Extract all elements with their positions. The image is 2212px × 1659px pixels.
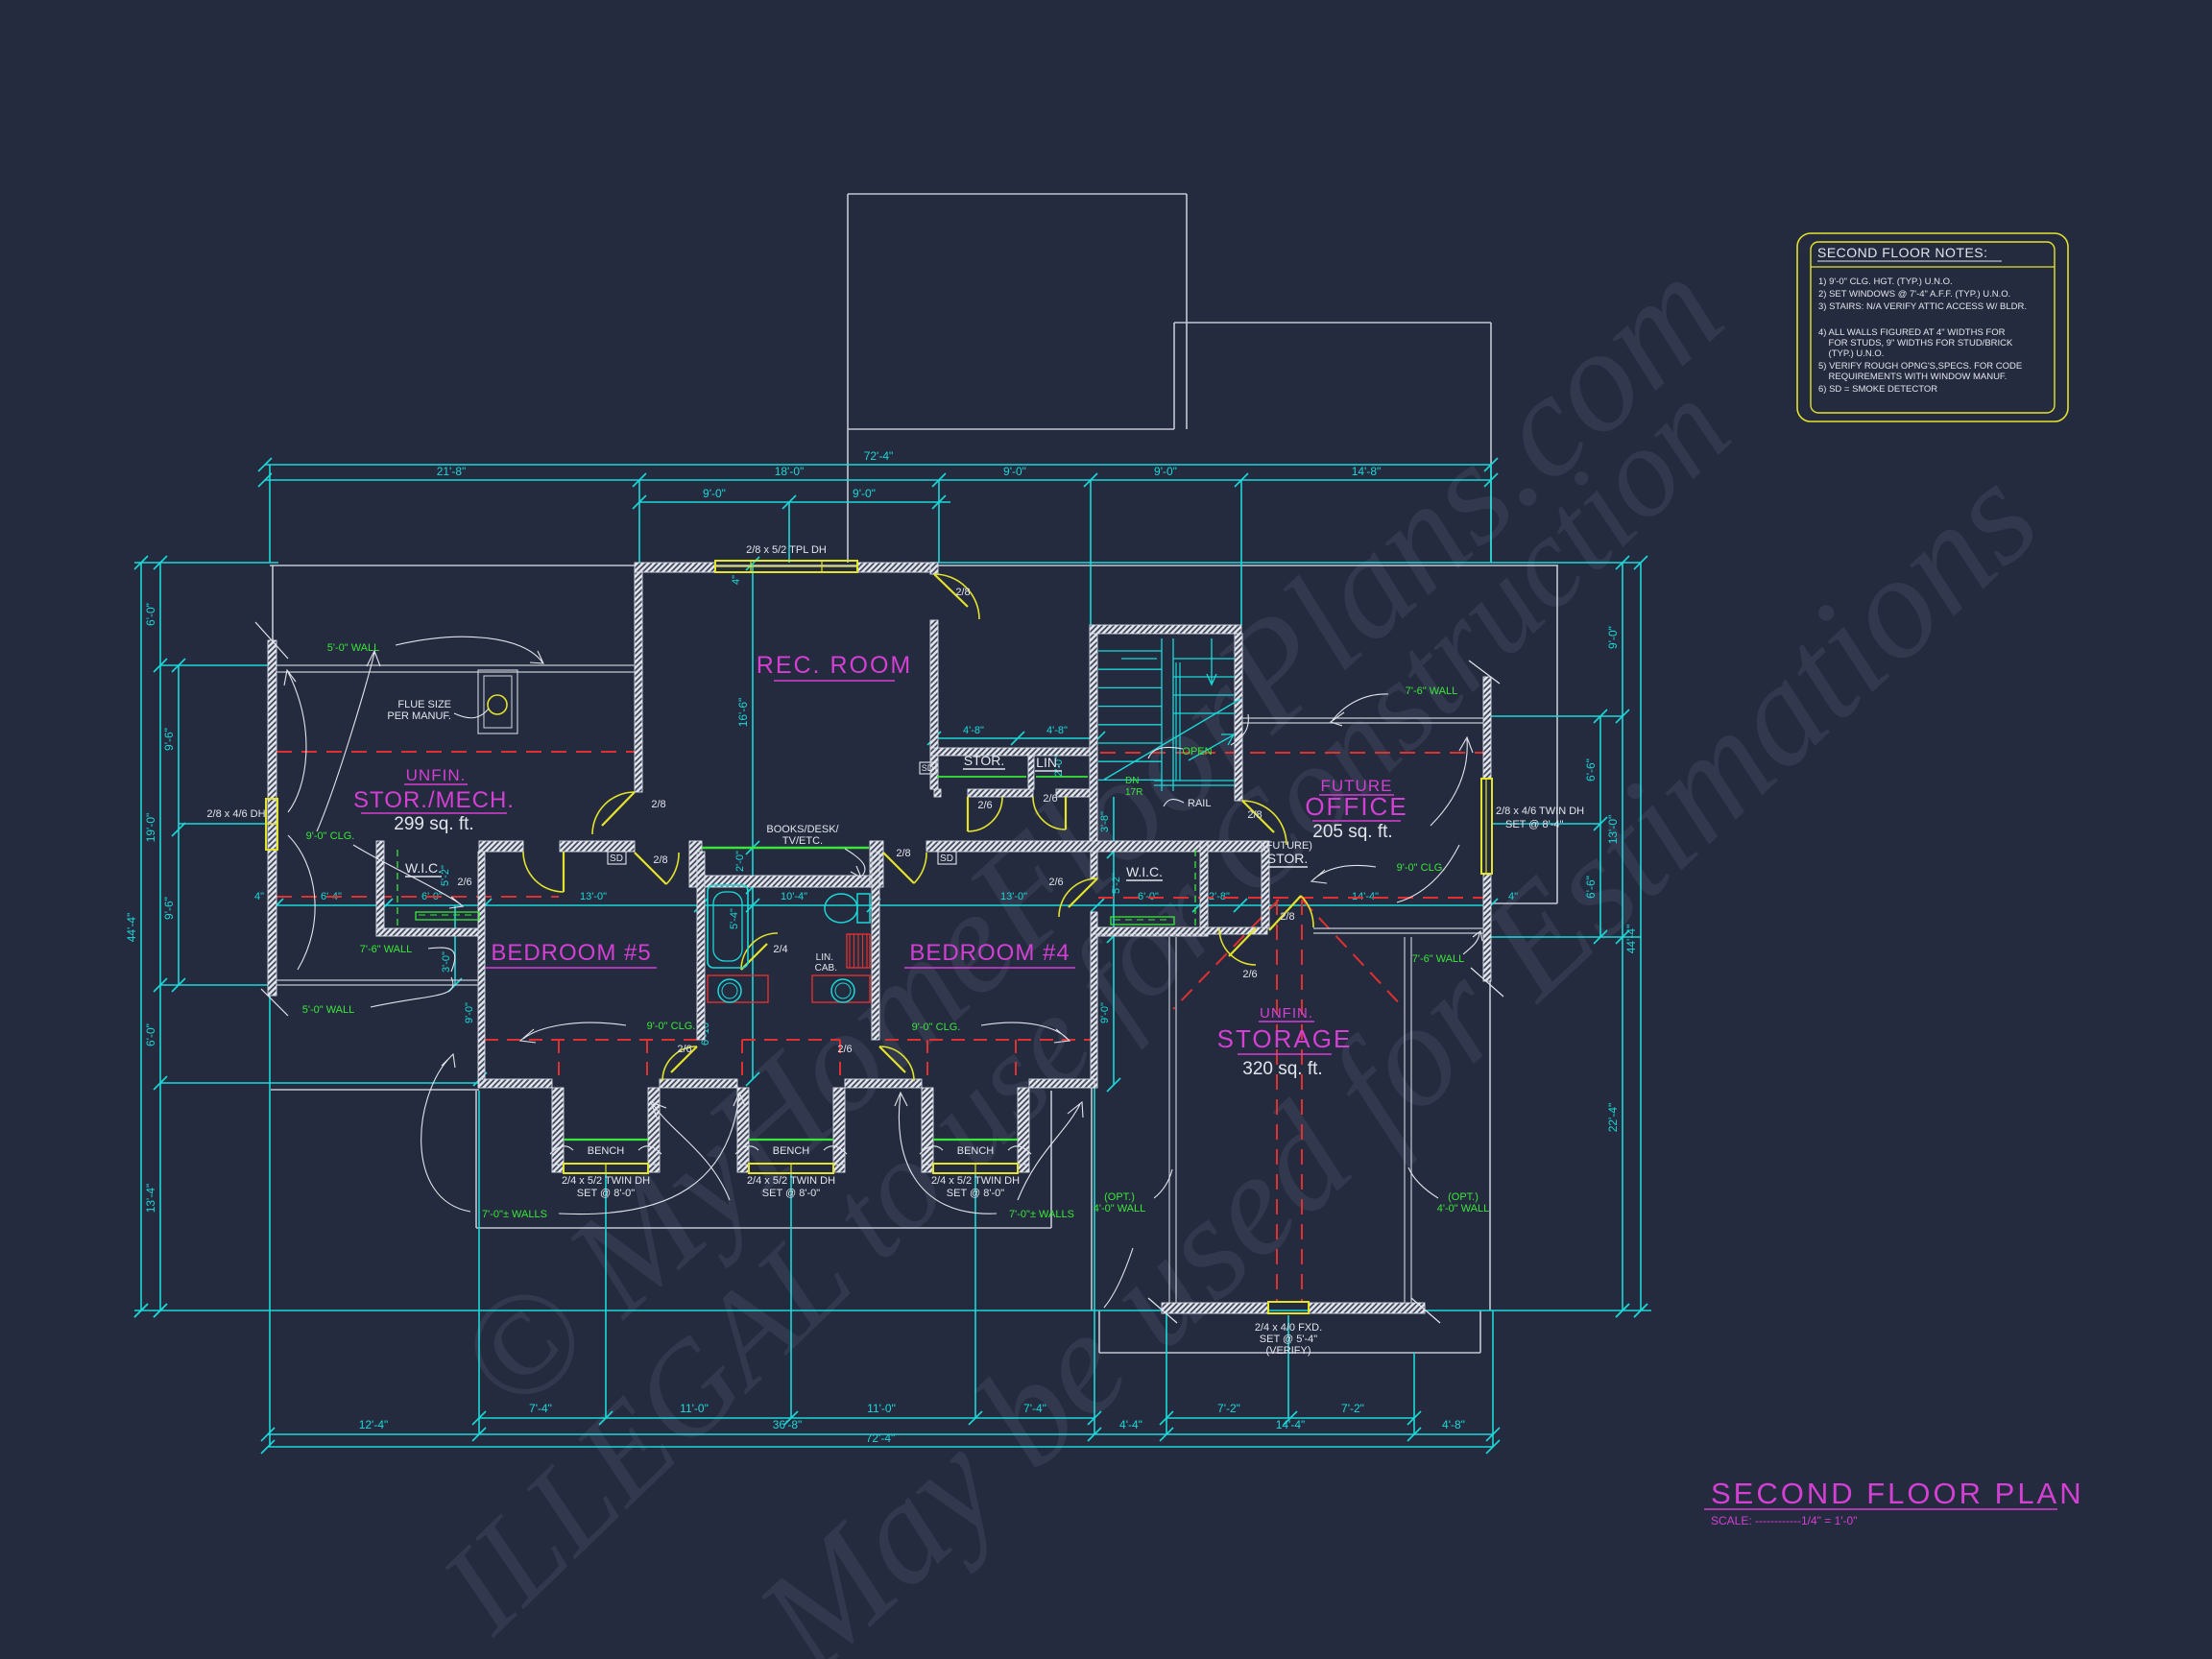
svg-text:UNFIN.: UNFIN. (406, 766, 467, 784)
svg-text:9'-0": 9'-0" (1606, 626, 1620, 649)
svg-text:9'-0": 9'-0" (1154, 465, 1177, 478)
svg-text:(OPT.): (OPT.) (1448, 1191, 1479, 1203)
svg-text:6'-6": 6'-6" (1584, 876, 1598, 899)
svg-text:14'-8": 14'-8" (1352, 465, 1382, 478)
svg-text:2/8: 2/8 (896, 848, 910, 859)
svg-text:18'-0": 18'-0" (775, 465, 805, 478)
svg-text:TV/ETC.: TV/ETC. (782, 835, 823, 847)
svg-text:44'-4": 44'-4" (1624, 925, 1638, 954)
svg-text:36'-8": 36'-8" (773, 1418, 803, 1431)
svg-text:2/4 x 4/0 FXD.: 2/4 x 4/0 FXD. (1255, 1322, 1322, 1334)
svg-text:2/8: 2/8 (955, 587, 970, 598)
svg-text:13'-4": 13'-4" (144, 1184, 157, 1214)
svg-text:SD: SD (922, 763, 934, 773)
svg-text:4) ALL WALLS FIGURED AT 4" WID: 4) ALL WALLS FIGURED AT 4" WIDTHS FOR (1818, 327, 2006, 338)
svg-text:2/8 x 5/2 TPL DH: 2/8 x 5/2 TPL DH (746, 544, 827, 556)
svg-text:17R: 17R (1125, 787, 1142, 798)
svg-text:7'-0"± WALLS: 7'-0"± WALLS (1009, 1209, 1074, 1220)
svg-text:22'-4": 22'-4" (1606, 1103, 1620, 1133)
svg-text:2/4 x 5/2 TWIN DH: 2/4 x 5/2 TWIN DH (562, 1175, 650, 1187)
svg-text:4'-0" WALL: 4'-0" WALL (1437, 1203, 1490, 1214)
svg-text:2/6: 2/6 (1048, 877, 1063, 888)
svg-text:9'-0": 9'-0" (703, 487, 726, 500)
svg-text:FOR STUDS, 9" WIDTHS FOR STUD/: FOR STUDS, 9" WIDTHS FOR STUD/BRICK (1818, 338, 2013, 349)
svg-text:PER MANUF.: PER MANUF. (387, 710, 451, 722)
svg-text:6'-6": 6'-6" (1584, 758, 1598, 781)
svg-text:6'-0": 6'-0" (144, 1023, 157, 1046)
svg-text:7'-6" WALL: 7'-6" WALL (360, 944, 413, 955)
svg-text:SCALE: ------------1/4" = 1'-0: SCALE: ------------1/4" = 1'-0" (1711, 1514, 1857, 1527)
svg-text:STOR.: STOR. (964, 753, 1005, 768)
svg-text:7'-4": 7'-4" (1023, 1402, 1046, 1415)
svg-text:W.I.C.: W.I.C. (1126, 864, 1163, 879)
svg-text:72'-4": 72'-4" (866, 1431, 896, 1445)
svg-text:3'-0": 3'-0" (441, 951, 452, 973)
svg-text:2/6: 2/6 (1043, 793, 1057, 805)
svg-text:7'-2": 7'-2" (1217, 1402, 1240, 1415)
svg-text:SECOND FLOOR NOTES:: SECOND FLOOR NOTES: (1817, 245, 1988, 260)
svg-text:13'-0": 13'-0" (580, 891, 607, 902)
svg-text:2/6: 2/6 (837, 1044, 852, 1055)
svg-text:4": 4" (254, 891, 264, 902)
svg-text:1) 9'-0" CLG. HGT. (TYP.) U.N: 1) 9'-0" CLG. HGT. (TYP.) U.N.O. (1818, 276, 1953, 287)
svg-text:9'-0": 9'-0" (464, 1002, 475, 1023)
svg-text:SECOND FLOOR PLAN: SECOND FLOOR PLAN (1711, 1477, 2084, 1510)
svg-text:STOR.: STOR. (1267, 851, 1309, 866)
svg-text:(VERIFY): (VERIFY) (1265, 1345, 1310, 1357)
svg-text:2/4 x 5/2 TWIN DH: 2/4 x 5/2 TWIN DH (931, 1175, 1020, 1187)
svg-text:BENCH: BENCH (773, 1145, 810, 1157)
svg-text:7'-6" WALL: 7'-6" WALL (1406, 685, 1458, 697)
svg-text:320 sq. ft.: 320 sq. ft. (1242, 1059, 1322, 1079)
svg-text:2'-0": 2'-0" (734, 851, 746, 872)
svg-text:13'-0": 13'-0" (1606, 815, 1620, 845)
svg-text:9'-0" CLG.: 9'-0" CLG. (1397, 862, 1446, 874)
svg-text:W.I.C.: W.I.C. (405, 860, 442, 876)
svg-text:6) SD = SMOKE DETECTOR: 6) SD = SMOKE DETECTOR (1818, 384, 1937, 395)
svg-text:9'-6": 9'-6" (162, 728, 176, 751)
svg-text:9'-0": 9'-0" (1099, 1002, 1111, 1023)
svg-text:72'-4": 72'-4" (864, 449, 894, 463)
svg-text:CAB.: CAB. (815, 963, 837, 974)
svg-text:5) VERIFY ROUGH OPNG'S,SPECS.: 5) VERIFY ROUGH OPNG'S,SPECS. FOR CODE (1818, 361, 2022, 372)
svg-text:9'-0" CLG.: 9'-0" CLG. (647, 1021, 696, 1032)
svg-text:2/8 x 4/6 TWIN DH: 2/8 x 4/6 TWIN DH (1496, 805, 1584, 817)
svg-text:14'-4": 14'-4" (1276, 1418, 1306, 1431)
svg-text:9'-0" CLG.: 9'-0" CLG. (306, 830, 355, 842)
svg-text:BEDROOM #4: BEDROOM #4 (909, 940, 1070, 966)
svg-text:44'-4": 44'-4" (125, 913, 138, 943)
svg-text:SD: SD (940, 854, 953, 864)
svg-text:BENCH: BENCH (588, 1145, 625, 1157)
svg-text:2/8: 2/8 (1280, 911, 1294, 923)
svg-text:SET @ 8'-4": SET @ 8'-4" (1505, 819, 1563, 830)
svg-text:SET @ 8'-0": SET @ 8'-0" (762, 1188, 820, 1199)
svg-text:6'-0": 6'-0" (144, 603, 157, 626)
svg-text:(OPT.): (OPT.) (1104, 1191, 1135, 1203)
svg-text:(TYP.) U.N.O.: (TYP.) U.N.O. (1818, 349, 1884, 359)
svg-text:STORAGE: STORAGE (1217, 1024, 1353, 1053)
svg-text:11'-0": 11'-0" (680, 1402, 709, 1415)
svg-text:RAIL: RAIL (1188, 798, 1211, 809)
svg-text:BOOKS/DESK/: BOOKS/DESK/ (766, 824, 839, 835)
svg-text:7'-6" WALL: 7'-6" WALL (1412, 953, 1465, 965)
svg-text:5'-4": 5'-4" (729, 908, 740, 929)
svg-text:FLUE SIZE: FLUE SIZE (397, 699, 451, 710)
svg-text:5'-0" WALL: 5'-0" WALL (327, 642, 380, 654)
svg-text:STOR./MECH.: STOR./MECH. (353, 787, 515, 813)
svg-text:4": 4" (1508, 891, 1518, 902)
svg-text:19'-0": 19'-0" (144, 813, 157, 843)
svg-text:10'-4": 10'-4" (781, 891, 807, 902)
svg-text:2/6: 2/6 (677, 1044, 691, 1055)
svg-text:4'-0" WALL: 4'-0" WALL (1094, 1203, 1146, 1214)
svg-text:4": 4" (731, 575, 742, 585)
svg-text:21'-8": 21'-8" (437, 465, 467, 478)
svg-text:4'-8": 4'-8" (963, 725, 984, 736)
svg-text:REC. ROOM: REC. ROOM (757, 652, 912, 679)
svg-text:REQUIREMENTS WITH WINDOW MANUF: REQUIREMENTS WITH WINDOW MANUF. (1818, 372, 2007, 382)
svg-text:5'-0" WALL: 5'-0" WALL (302, 1004, 355, 1016)
svg-text:5'-2": 5'-2" (1111, 873, 1122, 894)
svg-text:UNFIN.: UNFIN. (1260, 1005, 1313, 1022)
svg-text:OFFICE: OFFICE (1305, 792, 1407, 821)
svg-text:SET @ 8'-0": SET @ 8'-0" (947, 1188, 1004, 1199)
svg-text:3) STAIRS: N/A VERIFY ATTIC AC: 3) STAIRS: N/A VERIFY ATTIC ACCESS W/ BL… (1818, 301, 2027, 312)
svg-text:299 sq. ft.: 299 sq. ft. (394, 814, 473, 834)
svg-text:9'-0": 9'-0" (1003, 465, 1026, 478)
svg-text:2) SET WINDOWS @ 7'-4" A.F.F.: 2) SET WINDOWS @ 7'-4" A.F.F. (TYP.) U.N… (1818, 289, 2010, 300)
svg-text:SET @ 8'-0": SET @ 8'-0" (577, 1188, 635, 1199)
svg-text:9'-0": 9'-0" (853, 487, 876, 500)
svg-text:BEDROOM #5: BEDROOM #5 (491, 940, 651, 966)
svg-text:3'-8": 3'-8" (1099, 811, 1111, 832)
svg-text:BENCH: BENCH (957, 1145, 995, 1157)
svg-text:4'-4": 4'-4" (1119, 1418, 1142, 1431)
svg-text:SD: SD (610, 854, 623, 864)
svg-text:9'-0" CLG.: 9'-0" CLG. (912, 1022, 961, 1033)
svg-text:OPEN: OPEN (1182, 746, 1212, 757)
svg-text:2/6: 2/6 (977, 800, 992, 811)
svg-text:7'-0"± WALLS: 7'-0"± WALLS (482, 1209, 547, 1220)
svg-text:2/6: 2/6 (1242, 969, 1257, 980)
svg-text:12'-4": 12'-4" (359, 1418, 389, 1431)
svg-text:2/8: 2/8 (653, 854, 667, 866)
svg-text:DN: DN (1125, 776, 1139, 786)
svg-text:2/4: 2/4 (773, 944, 787, 955)
svg-text:11'-0": 11'-0" (867, 1402, 896, 1415)
svg-text:4'-8": 4'-8" (1046, 725, 1068, 736)
svg-text:LIN.: LIN. (816, 952, 833, 963)
svg-text:7'-2": 7'-2" (1341, 1402, 1364, 1415)
svg-text:2/8: 2/8 (1247, 809, 1262, 821)
svg-text:7'-4": 7'-4" (529, 1402, 552, 1415)
svg-text:9'-6": 9'-6" (162, 897, 176, 920)
svg-text:2/6: 2/6 (457, 877, 471, 888)
svg-text:2/8: 2/8 (651, 799, 665, 810)
svg-text:SET @ 5'-4": SET @ 5'-4" (1260, 1334, 1317, 1345)
svg-text:4'-8": 4'-8" (1442, 1418, 1465, 1431)
svg-text:2/4 x 5/2 TWIN DH: 2/4 x 5/2 TWIN DH (747, 1175, 835, 1187)
svg-text:205 sq. ft.: 205 sq. ft. (1312, 822, 1392, 842)
svg-text:16'-6": 16'-6" (736, 698, 750, 728)
svg-text:LIN.: LIN. (1036, 755, 1061, 770)
svg-text:2/8 x 4/6 DH: 2/8 x 4/6 DH (206, 808, 265, 820)
svg-text:13'-0": 13'-0" (1000, 891, 1027, 902)
